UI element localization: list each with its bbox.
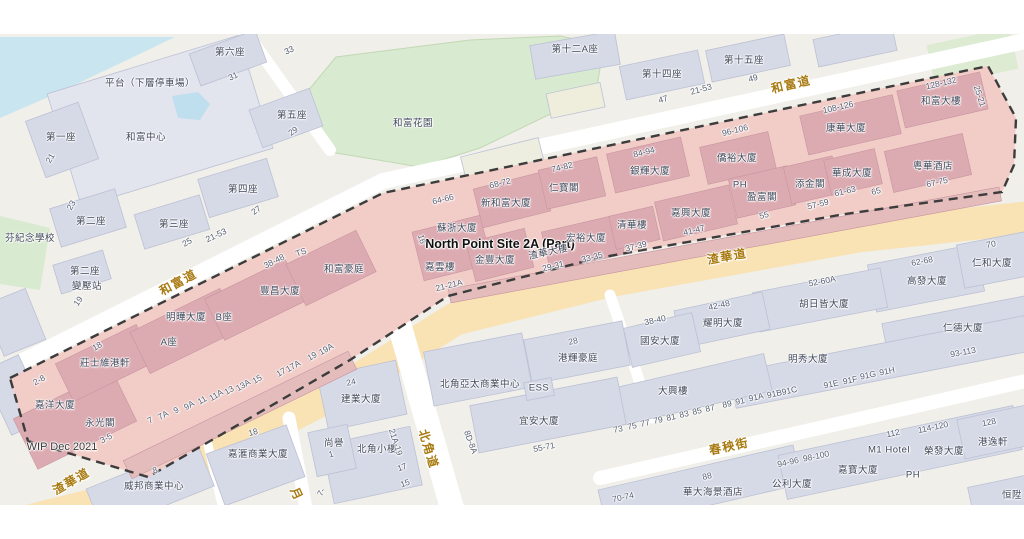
address-number-label: 108-126 xyxy=(822,99,855,116)
building-label: 仁德大廈 xyxy=(943,320,983,334)
address-number-label: TS xyxy=(294,245,308,258)
building-label: 嘉洋大廈 xyxy=(35,397,75,411)
building-label: 盈富閣 xyxy=(747,189,777,203)
address-number-label: 68-72 xyxy=(488,176,512,191)
address-number-label: 91E xyxy=(823,378,840,391)
building-label: 永光閣 xyxy=(85,415,115,429)
building-label: 莊士維港軒 xyxy=(80,355,130,369)
address-number-label: 16 xyxy=(416,233,428,245)
address-number-label: 70 xyxy=(985,238,996,250)
address-number-label: 13 xyxy=(222,383,235,396)
address-number-label: 18 xyxy=(247,426,259,438)
building-label: 第一座 xyxy=(46,129,76,143)
building-label: 和富花園 xyxy=(393,115,433,129)
building-label: 北角小樓 xyxy=(357,441,397,455)
address-number-label: 55-71 xyxy=(532,440,555,454)
address-number-label: 3-5 xyxy=(98,431,113,445)
wip-note-label: WIP Dec 2021 xyxy=(27,441,98,453)
building-label: 仁寶閣 xyxy=(549,180,579,194)
building-label: 金豐大廈 xyxy=(475,252,515,266)
building-label: 公利大廈 xyxy=(772,476,812,490)
building-label: 大興樓 xyxy=(658,383,688,397)
address-number-label: 1 xyxy=(327,449,334,460)
address-number-label: 94-96 xyxy=(776,455,799,469)
building-label: 渣華大樓 xyxy=(527,240,569,262)
building-label: 第四座 xyxy=(228,181,258,195)
address-number-label: 25-21 xyxy=(972,84,988,108)
building-label: 添金閣 xyxy=(795,176,825,190)
address-number-label: 29 xyxy=(286,124,299,138)
building-label: 變壓站 xyxy=(72,278,102,292)
building-label: 僑裕大廈 xyxy=(717,150,757,164)
building-label: 粵華酒店 xyxy=(913,158,953,172)
building-label: ESS xyxy=(529,383,550,394)
address-number-label: 61-63 xyxy=(833,184,857,199)
building-label: 胡日皆大廈 xyxy=(799,296,849,310)
building-label: 明曄大廈 xyxy=(166,309,206,323)
building-label: 嘉寶大廈 xyxy=(838,462,878,476)
address-number-label: 74-82 xyxy=(550,160,574,175)
address-number-label: 112 xyxy=(885,427,900,440)
address-number-label: 19 xyxy=(305,349,318,362)
building-label: 明秀大廈 xyxy=(788,351,828,365)
address-number-label: 91 xyxy=(734,395,745,407)
building-label: 高發大廈 xyxy=(907,273,947,287)
address-number-label: 81 xyxy=(665,411,676,423)
address-number-label: 47 xyxy=(657,93,669,105)
address-number-label: 37-39 xyxy=(624,239,648,254)
address-number-label: 91F xyxy=(842,374,858,387)
address-number-label: 49 xyxy=(747,72,759,84)
address-number-label: 96-106 xyxy=(721,122,749,138)
building-label: 第二座 xyxy=(76,213,106,227)
building-label: 第二座 xyxy=(70,263,100,277)
building-label: B座 xyxy=(216,309,233,323)
address-number-label: 84-94 xyxy=(632,145,656,160)
address-number-label: 91B91C xyxy=(766,384,798,400)
road-label: 春秧街 xyxy=(707,433,750,458)
address-number-label: 65 xyxy=(870,185,882,197)
address-number-label: 38-48 xyxy=(262,252,286,271)
address-number-label: 21-53 xyxy=(204,226,228,244)
building-label: 第六座 xyxy=(215,44,245,58)
address-number-label: 98-100 xyxy=(802,448,830,463)
building-label: 港輝豪庭 xyxy=(558,350,598,364)
road-label: 和富道 xyxy=(156,265,200,299)
building-label: 銀輝大廈 xyxy=(630,163,670,177)
address-number-label: 17 xyxy=(274,365,287,378)
address-number-label: 8D-8A xyxy=(462,429,480,455)
building-label: 嘉雲樓 xyxy=(425,259,455,273)
address-number-label: 11 xyxy=(196,393,209,406)
address-number-label: 8 xyxy=(151,464,159,475)
address-number-label: 9 xyxy=(171,404,180,415)
address-number-label: 21-53 xyxy=(689,81,713,96)
address-number-label: 91H xyxy=(878,364,895,377)
address-number-label: 70-74 xyxy=(611,490,634,504)
address-number-label: 77 xyxy=(639,417,650,429)
building-label: 宜安大廈 xyxy=(519,413,559,427)
address-number-label: 15 xyxy=(250,372,263,385)
address-number-label: 28 xyxy=(567,335,578,347)
address-number-label: 57-59 xyxy=(806,197,830,212)
address-number-label: 114-120 xyxy=(917,419,949,435)
address-number-label: 7 xyxy=(145,414,154,425)
address-number-label: 91G xyxy=(859,368,877,381)
address-number-label: 25 xyxy=(180,235,193,248)
building-label: 國安大廈 xyxy=(640,333,680,347)
road-label: 北角道 xyxy=(415,427,443,471)
building-label: 第三座 xyxy=(159,216,189,230)
address-number-label: 7A xyxy=(156,408,170,422)
building-label: 恒陞 xyxy=(1002,487,1022,501)
address-number-label: 62-68 xyxy=(910,254,933,268)
address-number-label: 19A xyxy=(317,341,335,357)
address-number-label: 88 xyxy=(701,470,712,482)
building-label: 華成大廈 xyxy=(832,165,872,179)
address-number-label: 87 xyxy=(704,402,715,414)
address-number-label: 52-60A xyxy=(808,273,837,288)
address-number-label: 15 xyxy=(399,477,411,490)
building-label: A座 xyxy=(161,334,178,348)
building-label: 耀明大廈 xyxy=(703,315,743,329)
site-title-label: North Point Site 2A (Part) xyxy=(425,237,575,251)
address-number-label: 31 xyxy=(227,69,240,82)
address-number-label: 38-40 xyxy=(643,313,666,327)
address-number-label: 17 xyxy=(396,461,408,474)
road-label: 渣華道 xyxy=(706,244,749,268)
address-number-label: 21A-19 xyxy=(387,427,405,456)
road-label: 渣華道 xyxy=(49,464,93,499)
address-number-label: 75 xyxy=(626,420,637,432)
address-number-label: 19 xyxy=(71,294,85,307)
address-number-label: 128-132 xyxy=(925,75,958,92)
address-number-label: 85 xyxy=(691,405,702,417)
address-number-label: 27 xyxy=(249,203,262,217)
address-number-label: 73 xyxy=(612,423,623,435)
road-label: 月 xyxy=(286,484,307,503)
address-number-label: 41-47 xyxy=(682,223,706,238)
address-number-label: 93-113 xyxy=(949,345,976,360)
building-label: 芬紀念學校 xyxy=(5,230,55,244)
building-label: PH xyxy=(733,180,747,191)
building-label: 和富中心 xyxy=(126,129,166,143)
map-labels: North Point Site 2A (Part) WIP Dec 2021 … xyxy=(0,0,1024,539)
address-number-label: 79 xyxy=(652,414,663,426)
building-label: 和富豪庭 xyxy=(324,261,364,275)
building-label: 威邦商業中心 xyxy=(124,478,184,492)
building-label: 蘇浙大廈 xyxy=(437,220,477,234)
building-label: M1 Hotel xyxy=(868,445,910,456)
address-number-label: 2-8 xyxy=(31,373,47,388)
building-label: 第十四座 xyxy=(642,66,682,80)
address-number-label: 33-35 xyxy=(580,250,604,265)
address-number-label: 21 xyxy=(43,151,56,164)
address-number-label: 91A xyxy=(748,391,765,404)
address-number-label: 7- xyxy=(315,486,327,498)
building-label: 宏裕大廈 xyxy=(566,230,606,244)
address-number-label: 17A xyxy=(284,358,302,374)
address-number-label: 83 xyxy=(678,408,689,420)
address-number-label: 29-31 xyxy=(541,259,565,274)
building-label: 華大海景酒店 xyxy=(683,484,743,498)
address-number-label: 55 xyxy=(758,209,770,221)
address-number-label: 11A xyxy=(207,387,225,403)
address-number-label: 21-21A xyxy=(434,277,463,293)
address-number-label: 23 xyxy=(64,198,77,211)
building-label: 第十二A座 xyxy=(552,41,599,55)
building-label: 仁和大廈 xyxy=(972,255,1012,269)
building-label: 港逸軒 xyxy=(978,434,1008,448)
building-label: 清華樓 xyxy=(617,217,647,231)
building-label: 第五座 xyxy=(277,107,307,121)
address-number-label: 64-66 xyxy=(431,192,455,207)
building-label: 平台（下層停車場） xyxy=(105,75,195,89)
building-label: 嘉興大廈 xyxy=(671,205,711,219)
address-number-label: 42-48 xyxy=(707,298,730,312)
address-number-label: 18 xyxy=(90,339,103,352)
building-label: PH xyxy=(906,470,920,481)
address-number-label: 13A xyxy=(234,377,252,393)
address-number-label: 89 xyxy=(721,398,732,410)
building-label: 新和富大廈 xyxy=(481,195,531,209)
address-number-label: 33 xyxy=(283,43,296,56)
building-label: 康華大廈 xyxy=(826,120,866,134)
building-label: 和富大樓 xyxy=(921,93,961,107)
building-label: 建業大廈 xyxy=(341,391,381,405)
building-label: 尚譽 xyxy=(324,435,344,449)
building-label: 榮發大廈 xyxy=(924,443,964,457)
address-number-label: 24 xyxy=(345,376,356,388)
building-label: 嘉滙商業大廈 xyxy=(228,446,288,460)
building-label: 豐昌大廈 xyxy=(260,283,300,297)
address-number-label: 128 xyxy=(981,416,997,429)
building-label: 北角亞太商業中心 xyxy=(440,376,520,390)
map-viewport[interactable]: North Point Site 2A (Part) WIP Dec 2021 … xyxy=(0,0,1024,539)
road-label: 和富道 xyxy=(769,71,812,97)
address-number-label: 9A xyxy=(182,398,196,412)
building-label: 第十五座 xyxy=(724,52,764,66)
address-number-label: 67-75 xyxy=(925,175,948,189)
